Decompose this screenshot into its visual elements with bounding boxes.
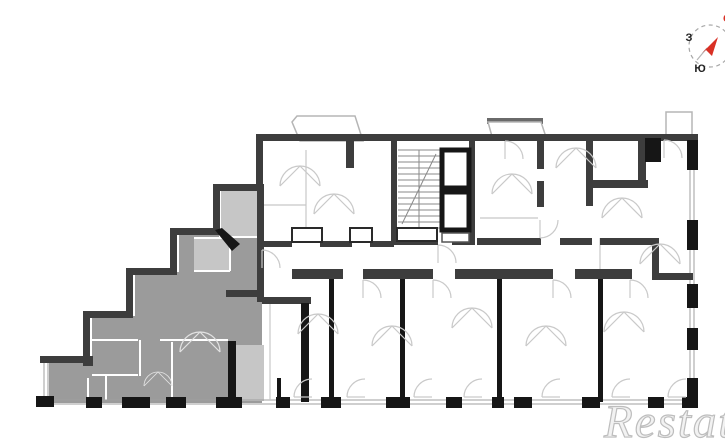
bottom-window-piers [36,396,698,408]
floor-plan-image: З Ю С [0,0,725,444]
compass-ring [689,25,725,67]
corridor-threshold-box [292,228,322,242]
compass-needle-icon [702,37,718,56]
right-window-piers [687,140,698,403]
apartment-dividers [277,279,603,402]
compass-west-label: З [686,32,693,44]
compass-south-label: Ю [694,63,705,75]
stair-landing-box [397,228,437,241]
watermark: Restate [604,399,725,446]
staircase [397,150,469,242]
floor-plan-canvas: З Ю С [0,0,725,444]
corridor-threshold-box [350,228,372,242]
elevator-shafts [442,150,469,242]
compass-rose: З Ю С [686,13,725,75]
